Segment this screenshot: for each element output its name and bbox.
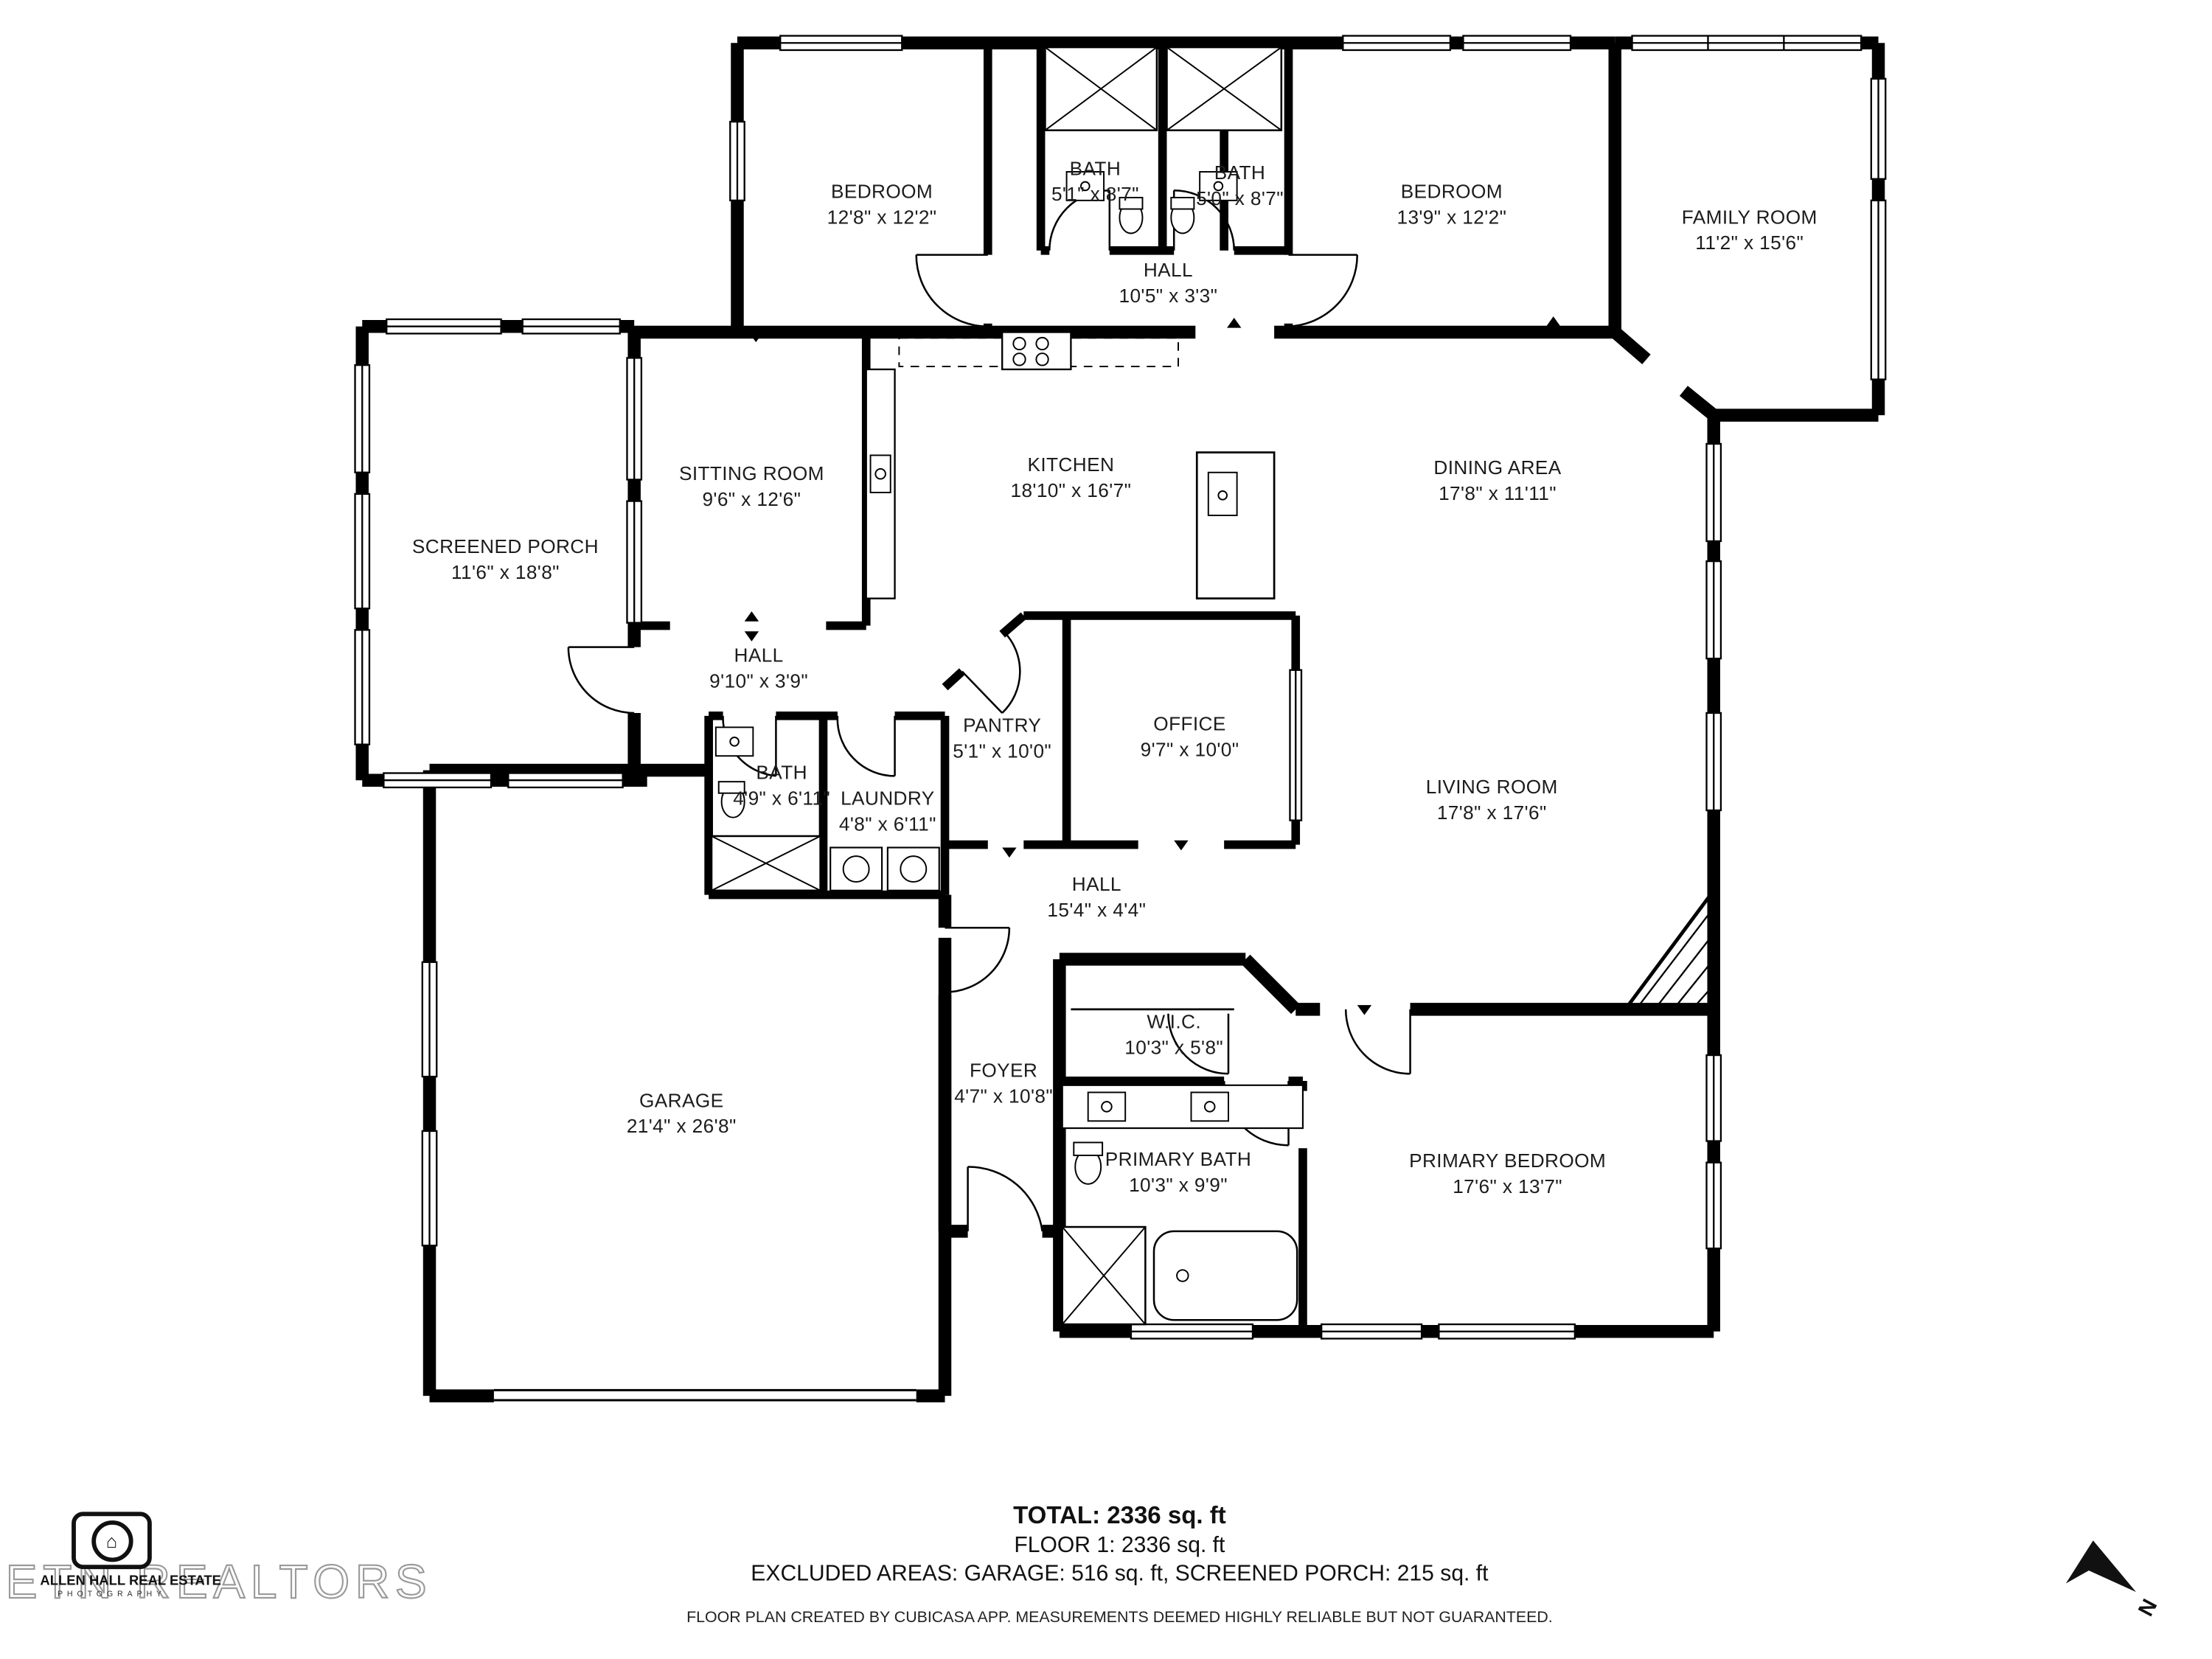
- room-label-pantry: PANTRY5'1" x 10'0": [953, 713, 1051, 764]
- room-label-hall-lower: HALL15'4" x 4'4": [1047, 872, 1146, 923]
- room-label-laundry: LAUNDRY4'8" x 6'11": [839, 786, 936, 837]
- room-label-living-room: LIVING ROOM17'8" x 17'6": [1426, 775, 1558, 826]
- bedroom1-door: [917, 255, 988, 327]
- garage-door: [494, 1390, 917, 1400]
- total-area: TOTAL: 2336 sq. ft: [476, 1503, 1764, 1530]
- room-label-bath-1: BATH5'1" x 8'7": [1051, 156, 1139, 207]
- north-label: N: [2134, 1596, 2162, 1621]
- north-arrow: N: [2066, 1540, 2163, 1620]
- floor1-area: FLOOR 1: 2336 sq. ft: [476, 1533, 1764, 1559]
- logo-subtitle: PHOTOGRAPHY: [40, 1590, 183, 1599]
- floor-plan-page: N BEDROOM12'8" x 12'2" BATH5'1" x 8'7" B…: [0, 0, 2212, 1659]
- windows: [355, 36, 1886, 1339]
- porch-door: [568, 647, 634, 713]
- room-label-dining-area: DINING AREA17'8" x 11'11": [1433, 456, 1561, 507]
- room-label-primary-bedroom: PRIMARY BEDROOM17'6" x 13'7": [1409, 1149, 1606, 1200]
- pantry-door: [1002, 631, 1020, 713]
- room-label-family-room: FAMILY ROOM11'2" x 15'6": [1682, 205, 1818, 256]
- floor-plan: N BEDROOM12'8" x 12'2" BATH5'1" x 8'7" B…: [0, 0, 2212, 1659]
- room-label-sitting-room: SITTING ROOM9'6" x 12'6": [679, 462, 824, 512]
- primary-bedroom-door: [1346, 1009, 1410, 1074]
- room-label-bedroom-2: BEDROOM13'9" x 12'2": [1397, 179, 1506, 230]
- room-label-foyer: FOYER4'7" x 10'8": [954, 1058, 1053, 1109]
- floorplan-svg: N: [0, 0, 2212, 1659]
- room-label-bath-3: BATH4'9" x 6'11": [733, 760, 830, 811]
- room-label-office: OFFICE9'7" x 10'0": [1141, 712, 1239, 762]
- room-label-kitchen: KITCHEN18'10" x 16'7": [1010, 453, 1131, 504]
- photographer-logo: ⌂ ALLEN HALL REAL ESTATE PHOTOGRAPHY: [40, 1512, 183, 1599]
- excluded-areas: EXCLUDED AREAS: GARAGE: 516 sq. ft, SCRE…: [476, 1561, 1764, 1587]
- bedroom2-door: [1289, 255, 1357, 327]
- camera-lens-house-icon: ⌂: [91, 1520, 132, 1561]
- room-label-garage: GARAGE21'4" x 26'8": [627, 1088, 737, 1139]
- room-label-bath-2: BATH5'0" x 8'7": [1196, 161, 1284, 212]
- stove: [1002, 332, 1071, 369]
- garage-entry-door: [945, 928, 1009, 992]
- area-summary: TOTAL: 2336 sq. ft FLOOR 1: 2336 sq. ft …: [476, 1503, 1764, 1627]
- tub: [1154, 1231, 1297, 1320]
- room-label-screened-porch: SCREENED PORCH11'6" x 18'8": [412, 535, 599, 585]
- room-label-hall-top: HALL10'5" x 3'3": [1119, 258, 1217, 309]
- room-label-hall-mid: HALL9'10" x 3'9": [709, 643, 808, 694]
- disclaimer: FLOOR PLAN CREATED BY CUBICASA APP. MEAS…: [476, 1610, 1764, 1627]
- camera-icon: ⌂: [72, 1512, 152, 1569]
- room-label-bedroom-1: BEDROOM12'8" x 12'2": [827, 179, 937, 230]
- logo-name: ALLEN HALL REAL ESTATE: [40, 1573, 183, 1589]
- room-label-wic: W.I.C.10'3" x 5'8": [1124, 1009, 1223, 1060]
- stairs: [1622, 891, 1714, 1014]
- room-label-primary-bath: PRIMARY BATH10'3" x 9'9": [1105, 1147, 1251, 1198]
- laundry-door: [838, 716, 895, 776]
- front-door: [968, 1166, 1043, 1231]
